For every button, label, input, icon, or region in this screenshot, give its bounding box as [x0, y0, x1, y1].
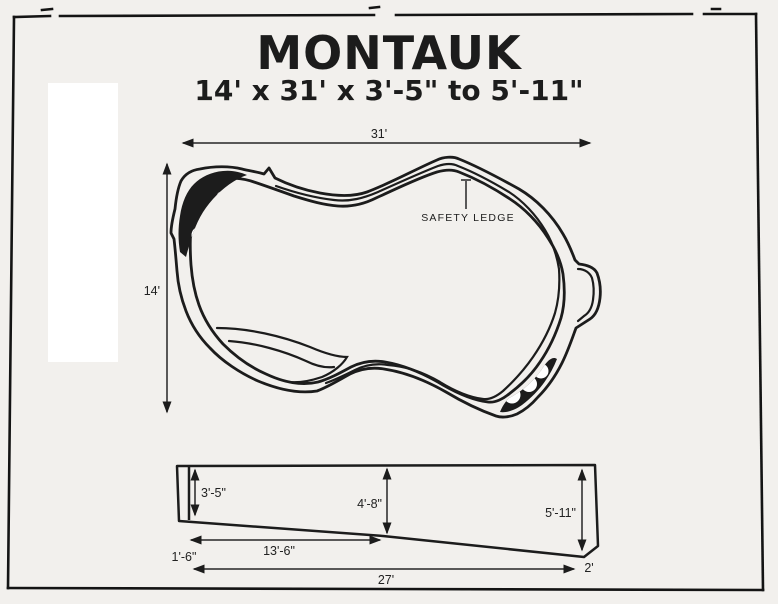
deep-bevel-label: 2': [584, 561, 593, 575]
safety-ledge-line: [276, 164, 559, 399]
middle-depth-label: 4'-8": [357, 497, 382, 511]
whiteout-patch: [48, 83, 118, 362]
profile-dimensions: 3'-5" 4'-8" 5'-11" 13'-6" 1'-6" 27' 2': [172, 469, 594, 587]
plan-view: 31' 14' SAFETY LEDGE: [144, 127, 601, 417]
swimout-inner-line: [578, 269, 594, 321]
entry-width-label: 1'-6": [172, 550, 197, 564]
length-dimension-label: 31': [371, 127, 387, 141]
model-dimensions-subtitle: 14' x 31' x 3'-5" to 5'-11": [0, 77, 778, 105]
profile-view: 3'-5" 4'-8" 5'-11" 13'-6" 1'-6" 27' 2': [172, 465, 598, 587]
model-title: MONTAUK: [0, 30, 778, 76]
steps-top-left: [179, 171, 248, 257]
shallow-run-label: 13'-6": [263, 544, 295, 558]
deep-depth-label: 5'-11": [545, 506, 576, 520]
shallow-depth-label: 3'-5": [201, 486, 226, 500]
bottom-length-label: 27': [378, 573, 394, 587]
scan-artifact-marks: [42, 7, 720, 10]
width-dimension-label: 14': [144, 284, 160, 298]
safety-ledge-label: SAFETY LEDGE: [421, 212, 515, 224]
scanned-pool-spec-page: 31' 14' SAFETY LEDGE 3'-5" 4'-8" 5'-11": [0, 0, 778, 604]
